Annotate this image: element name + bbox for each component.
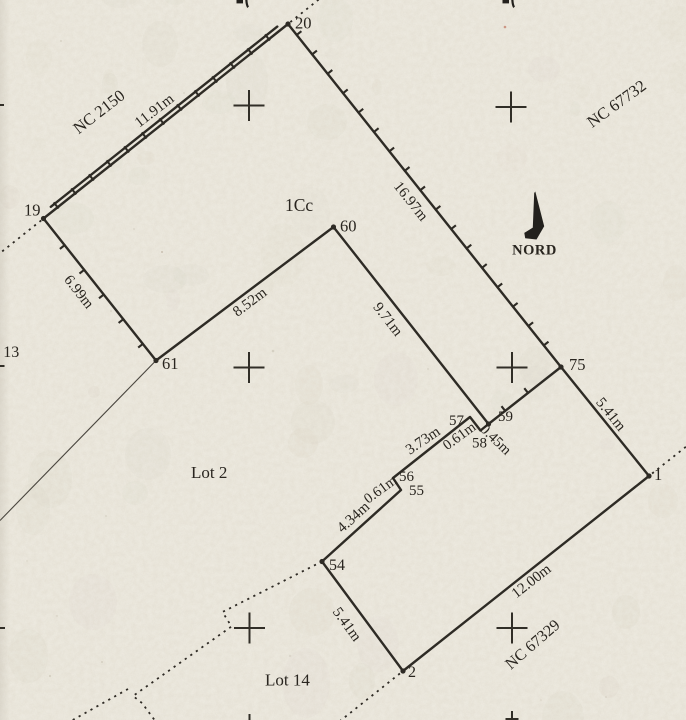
svg-text:60: 60 <box>340 217 357 236</box>
svg-text:57: 57 <box>449 413 465 429</box>
svg-text:61: 61 <box>162 354 179 373</box>
svg-text:1Cc: 1Cc <box>285 195 313 215</box>
svg-text:2: 2 <box>408 664 416 681</box>
svg-text:55: 55 <box>409 483 424 499</box>
svg-text:75: 75 <box>569 355 586 374</box>
svg-text:Lot 14: Lot 14 <box>265 671 310 690</box>
svg-text:NORD: NORD <box>512 243 557 259</box>
svg-text:54: 54 <box>329 557 345 574</box>
svg-text:20: 20 <box>295 14 312 33</box>
svg-text:1: 1 <box>654 465 662 484</box>
svg-text:19: 19 <box>24 201 41 220</box>
svg-text:Lot 13: Lot 13 <box>0 344 19 361</box>
svg-text:Lot 2: Lot 2 <box>191 463 227 482</box>
svg-text:58: 58 <box>472 436 487 452</box>
svg-text:59: 59 <box>498 409 513 425</box>
